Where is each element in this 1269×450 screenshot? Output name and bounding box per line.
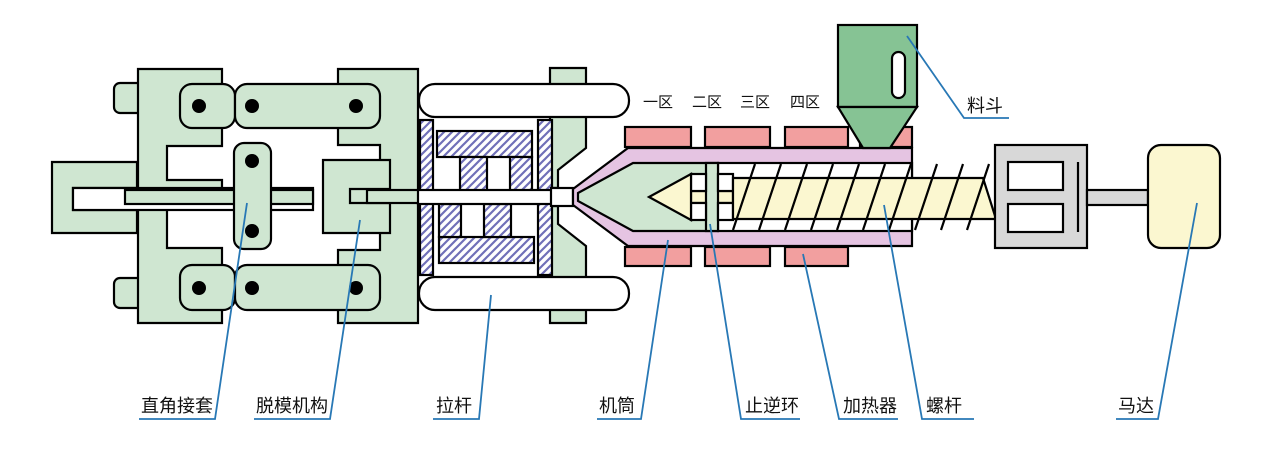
mold-block [510,157,532,191]
mold-block [439,237,534,263]
pin-icon [245,154,259,168]
label-zone3: 三区 [740,94,770,111]
piston-rod [125,190,313,204]
label-demolding-mechanism: 脱模机构 [256,396,328,416]
label-zone4: 四区 [790,94,820,111]
housing-window-top [1008,162,1063,190]
ejector-rod [367,190,420,203]
label-zone1: 一区 [643,94,673,111]
motor-body [1148,145,1220,248]
heater-zone1-top [625,127,691,147]
pin-icon [192,99,206,113]
label-zone2: 二区 [692,94,722,111]
housing-window-bottom [1008,204,1063,232]
zone-labels: 一区 二区 三区 四区 [643,94,820,111]
heater-zone3-bottom [785,247,848,266]
pin-icon [245,281,259,295]
check-ring-gap [718,203,733,220]
label-tie-rod: 拉杆 [436,396,472,416]
heater-zone2-top [705,127,770,147]
label-screw: 螺杆 [926,396,962,416]
pin-icon [245,224,259,238]
heater-zone1-bottom [625,247,691,266]
mold-parting-channel [418,190,553,204]
mold [418,120,573,275]
heater-zone3-top [785,127,848,147]
check-ring-gap [691,203,706,220]
sprue-channel [551,188,573,206]
tie-bar-bottom [419,277,629,310]
toggle-link-bottom-rear [180,265,235,310]
mold-block [437,131,532,157]
injection-molding-machine-diagram: 直角接套 脱模机构 拉杆 机筒 止逆环 加热器 螺杆 马达 料斗 一区 二区 三… [0,0,1269,450]
mold-block [484,204,511,237]
hopper-sight-slot [892,52,905,98]
label-motor: 马达 [1118,396,1154,416]
mold-block [460,157,487,191]
check-ring-gap [691,174,706,191]
pin-icon [349,99,363,113]
tie-bar-top [419,84,629,117]
injection-unit [573,148,996,246]
label-heater: 加热器 [843,396,897,416]
label-barrel: 机筒 [599,396,635,416]
drive-shaft [1087,190,1148,205]
drive-unit [995,145,1220,248]
label-check-ring: 止逆环 [745,396,799,416]
check-ring [706,163,718,231]
machine-diagram-svg: 直角接套 脱模机构 拉杆 机筒 止逆环 加热器 螺杆 马达 料斗 一区 二区 三… [0,0,1269,450]
leader-heater [803,254,898,419]
label-right-angle-sleeve: 直角接套 [141,396,213,416]
clamping-unit [52,69,420,323]
label-hopper: 料斗 [967,96,1003,116]
mold-block [439,204,461,237]
pin-icon [192,281,206,295]
pin-icon [245,99,259,113]
check-ring-gap [718,174,733,191]
toggle-link-top-rear [180,84,235,128]
